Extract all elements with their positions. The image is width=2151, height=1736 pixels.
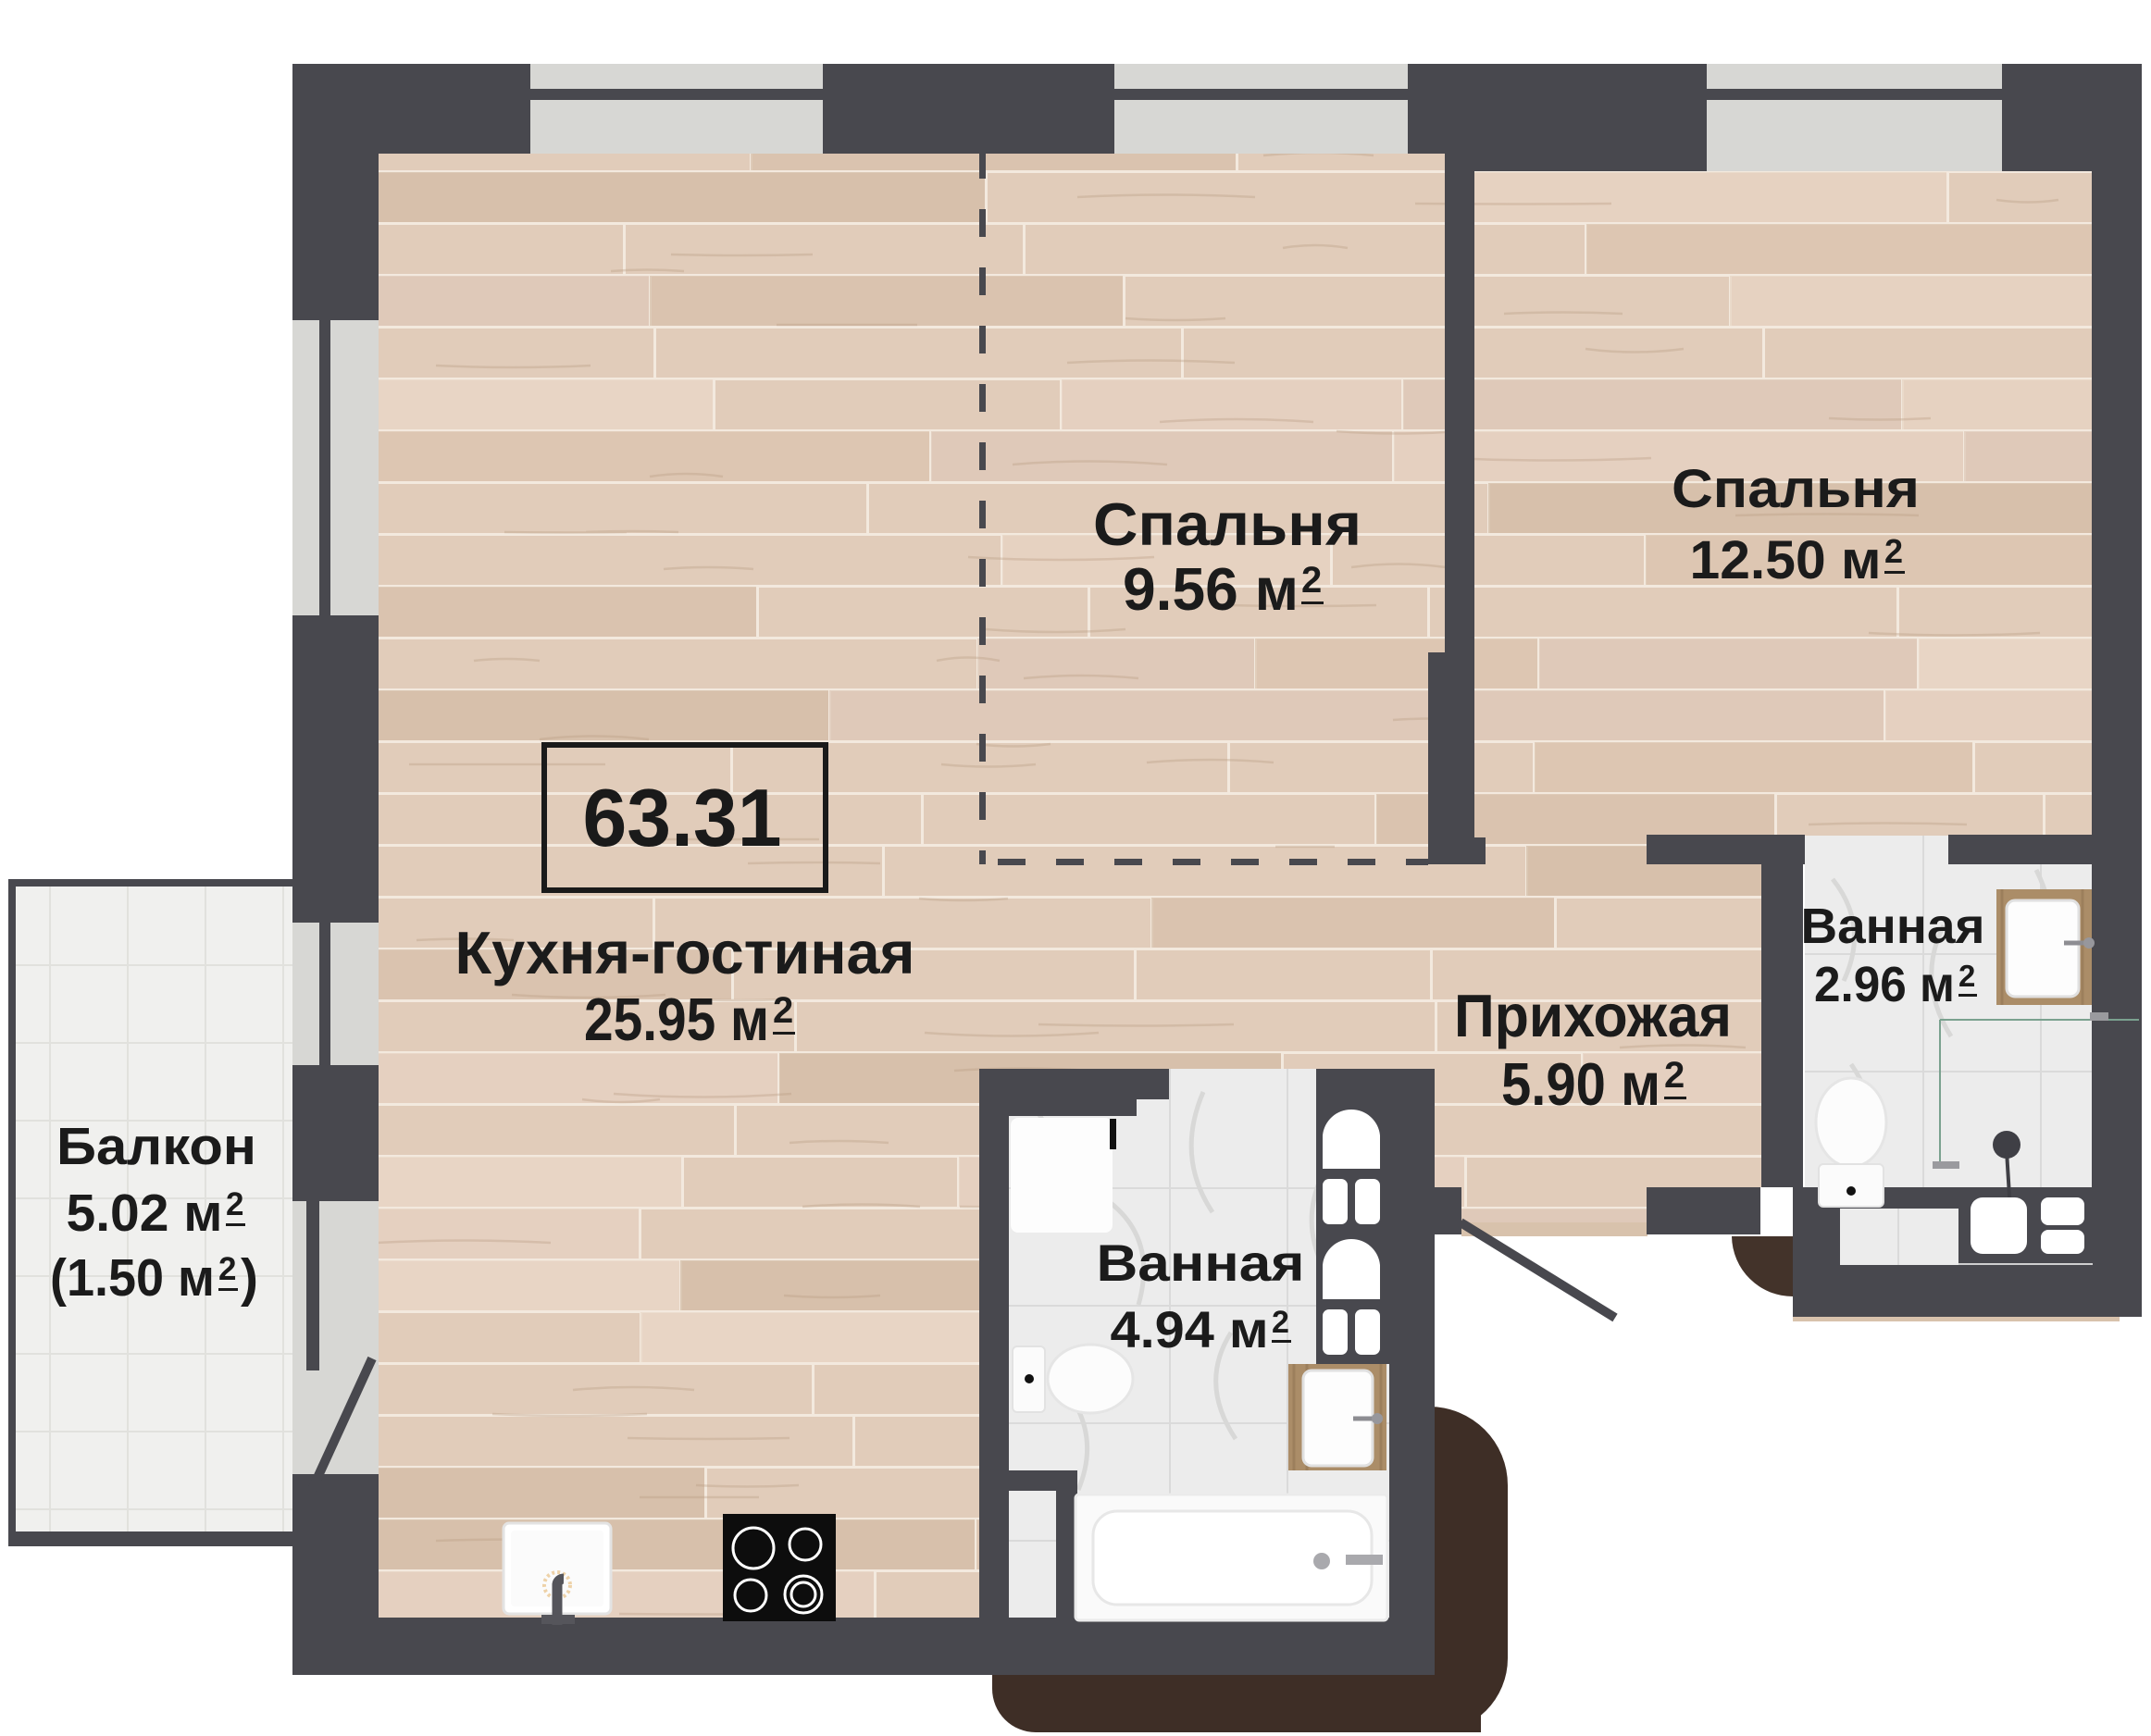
svg-text:2.96 м: 2.96 м [1814,957,1955,1012]
svg-text:4.94 м: 4.94 м [1111,1300,1269,1358]
svg-text:(1.50 м: (1.50 м [50,1248,215,1308]
svg-text:Ванная: Ванная [1801,899,1985,954]
svg-text:63.31: 63.31 [583,772,782,863]
svg-text:5.02 м: 5.02 м [67,1184,223,1243]
svg-text:2: 2 [773,990,793,1031]
svg-text:25.95 м: 25.95 м [584,986,769,1053]
svg-text:Кухня-гостиная: Кухня-гостиная [455,919,915,986]
svg-text:Спальня: Спальня [1093,490,1361,558]
svg-text:2: 2 [1272,1305,1289,1340]
svg-text:12.50 м: 12.50 м [1690,530,1882,590]
svg-text:5.90 м: 5.90 м [1501,1050,1660,1118]
svg-text:9.56 м: 9.56 м [1123,555,1299,623]
svg-text:2: 2 [1664,1055,1685,1096]
svg-text:Балкон: Балкон [56,1117,256,1176]
svg-text:2: 2 [226,1186,243,1222]
svg-text:2: 2 [1958,959,1975,993]
svg-text:Ванная: Ванная [1097,1234,1305,1292]
svg-text:2: 2 [1884,532,1903,570]
svg-text:Прихожая: Прихожая [1454,982,1732,1049]
svg-text:): ) [241,1248,258,1308]
svg-text:2: 2 [218,1251,236,1287]
svg-text:2: 2 [1301,560,1322,601]
svg-text:Спальня: Спальня [1672,459,1920,519]
